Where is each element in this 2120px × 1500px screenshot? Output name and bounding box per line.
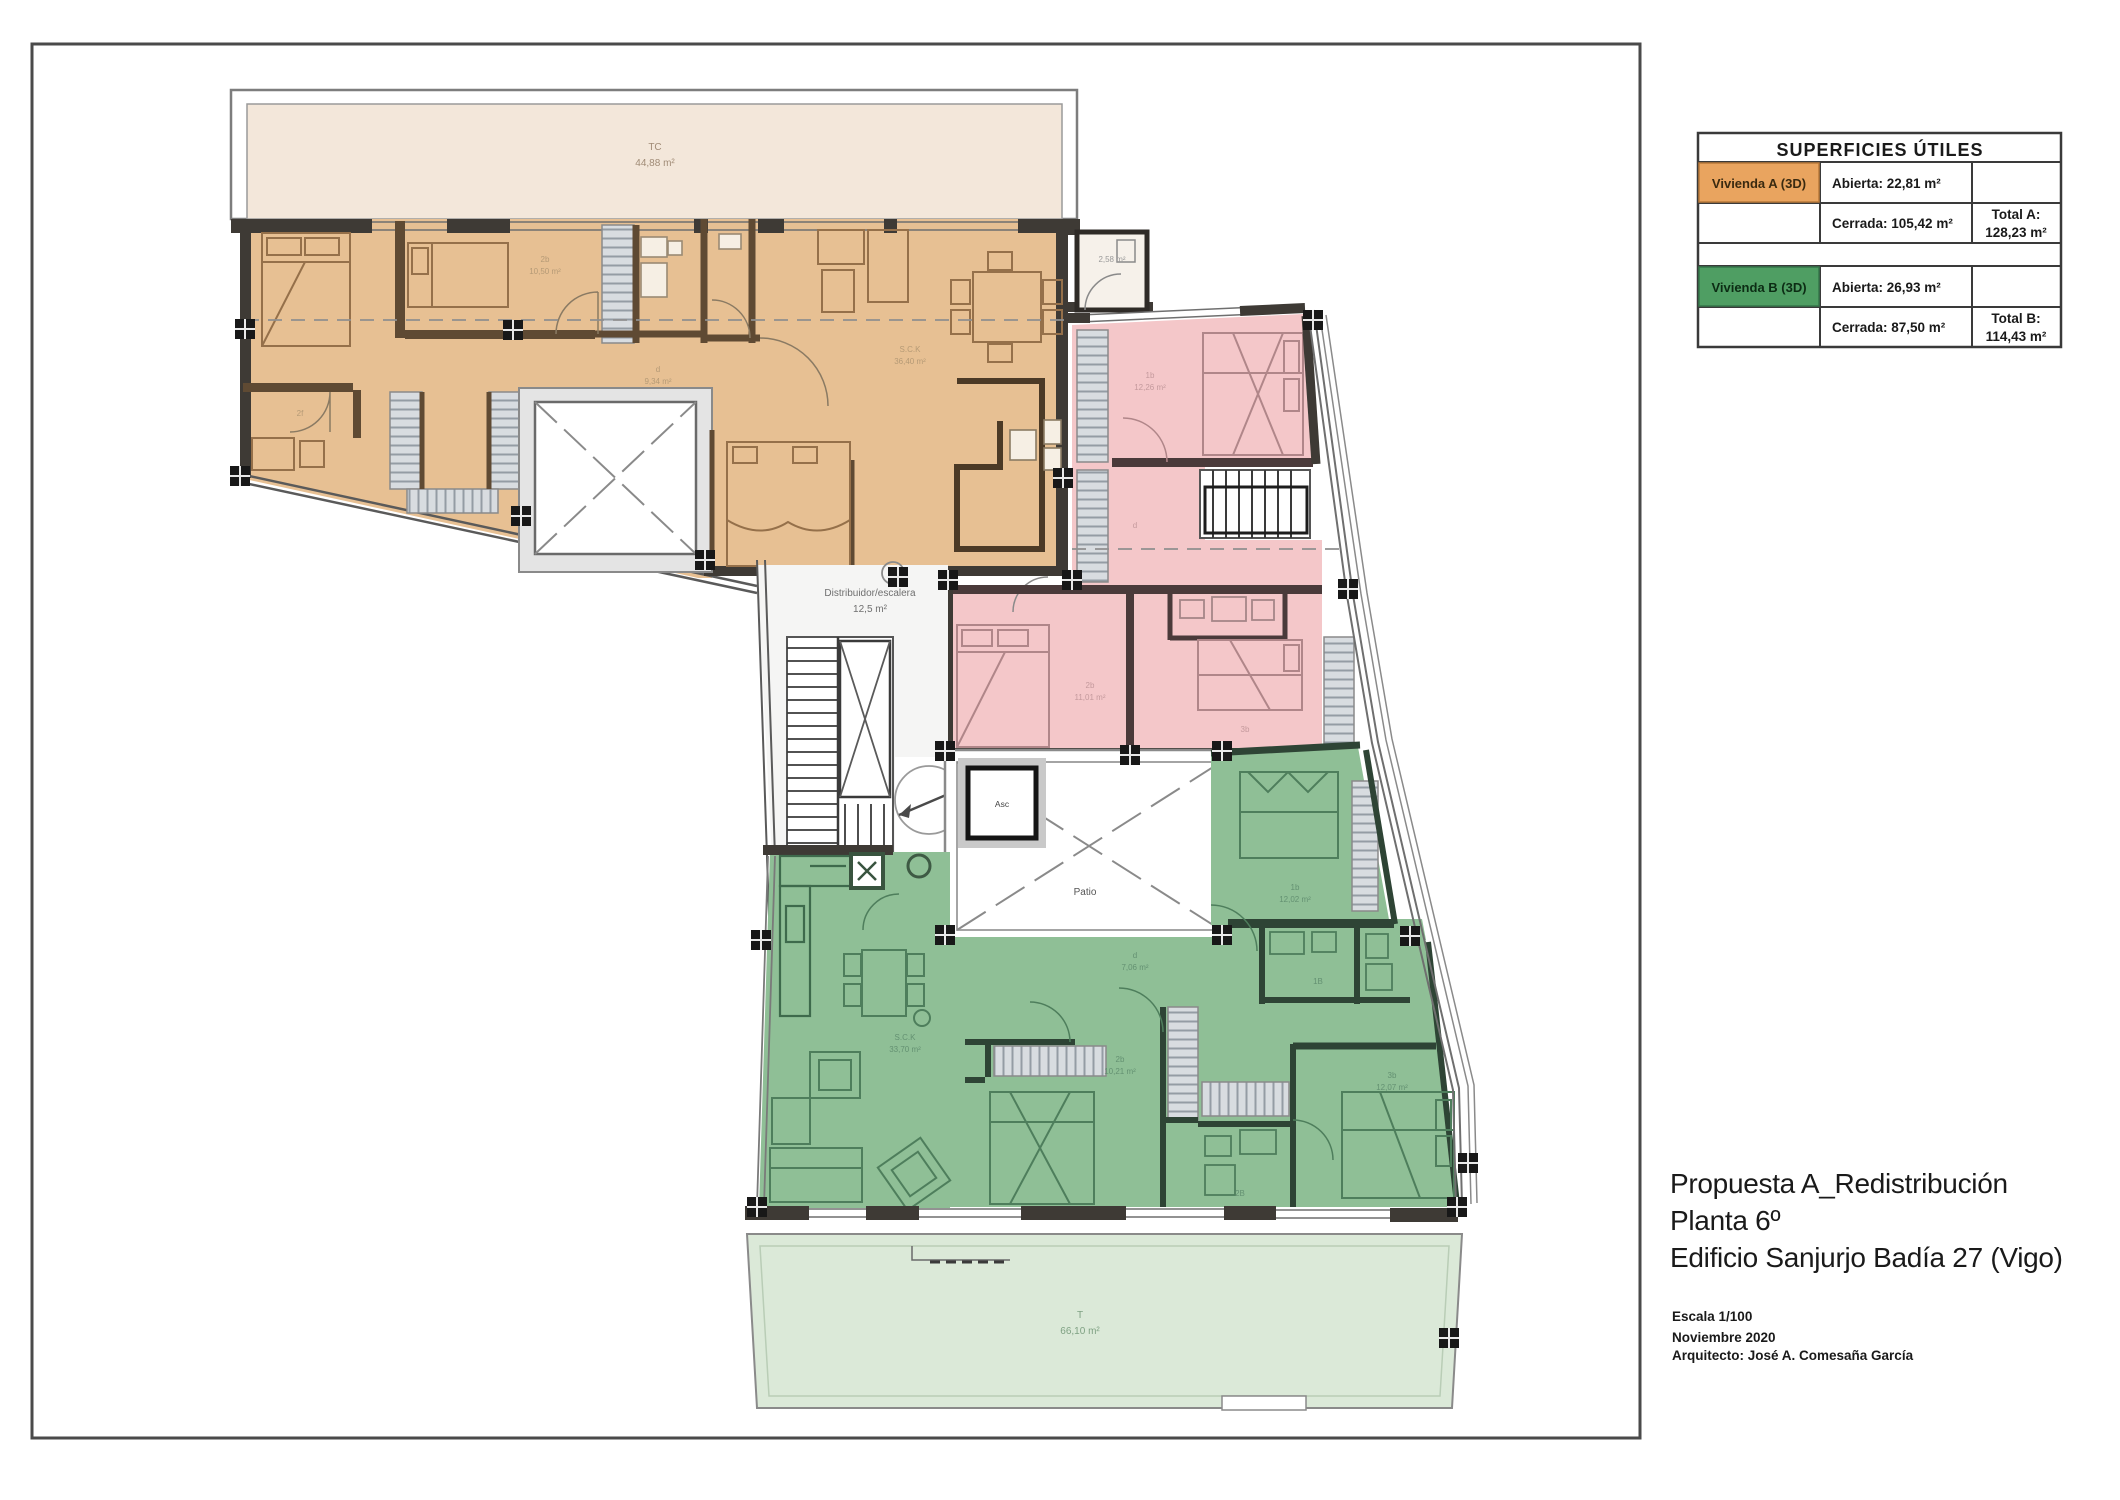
svg-text:d: d	[1133, 521, 1137, 530]
svg-text:Vivienda A (3D): Vivienda A (3D)	[1712, 176, 1806, 191]
svg-text:66,10 m²: 66,10 m²	[1060, 1326, 1100, 1337]
svg-text:11,01 m²: 11,01 m²	[1075, 693, 1106, 702]
svg-text:2B: 2B	[1235, 1189, 1245, 1198]
svg-text:Planta 6º: Planta 6º	[1670, 1205, 1780, 1236]
svg-text:S.C.K: S.C.K	[900, 345, 922, 354]
svg-text:7,06 m²: 7,06 m²	[1121, 963, 1148, 972]
svg-text:Distribuidor/escalera: Distribuidor/escalera	[824, 588, 916, 599]
svg-text:36,40 m²: 36,40 m²	[894, 357, 926, 366]
svg-text:2,58 m²: 2,58 m²	[1098, 255, 1125, 264]
svg-text:Patio: Patio	[1074, 887, 1097, 898]
svg-text:1B: 1B	[1313, 977, 1323, 986]
svg-text:2b: 2b	[1086, 681, 1095, 690]
svg-text:114,43 m²: 114,43 m²	[1986, 329, 2047, 344]
svg-text:12,26 m²: 12,26 m²	[1134, 383, 1166, 392]
svg-text:Cerrada: 105,42 m²: Cerrada: 105,42 m²	[1832, 216, 1953, 231]
svg-text:1b: 1b	[1146, 371, 1155, 380]
svg-text:Edificio Sanjurjo Badía 27 (Vi: Edificio Sanjurjo Badía 27 (Vigo)	[1670, 1242, 2063, 1273]
svg-text:Abierta: 22,81 m²: Abierta: 22,81 m²	[1832, 176, 1941, 191]
svg-text:Abierta: 26,93 m²: Abierta: 26,93 m²	[1832, 280, 1941, 295]
svg-text:44,88 m²: 44,88 m²	[635, 158, 675, 169]
svg-text:Arquitecto: José A. Comesaña G: Arquitecto: José A. Comesaña García	[1672, 1348, 1914, 1363]
svg-text:10,50 m²: 10,50 m²	[529, 267, 561, 276]
svg-text:12,5 m²: 12,5 m²	[853, 604, 888, 615]
svg-text:128,23 m²: 128,23 m²	[1985, 225, 2047, 240]
svg-text:3b: 3b	[1388, 1071, 1397, 1080]
svg-text:12,07 m²: 12,07 m²	[1376, 1083, 1408, 1092]
svg-text:Propuesta A_Redistribución: Propuesta A_Redistribución	[1670, 1168, 2008, 1199]
svg-text:Cerrada: 87,50 m²: Cerrada: 87,50 m²	[1832, 320, 1946, 335]
svg-text:TC: TC	[648, 142, 661, 153]
svg-text:Escala 1/100: Escala 1/100	[1672, 1309, 1752, 1324]
svg-text:Total A:: Total A:	[1992, 207, 2041, 222]
svg-text:Noviembre 2020: Noviembre 2020	[1672, 1330, 1776, 1345]
svg-text:9,34 m²: 9,34 m²	[644, 377, 671, 386]
svg-text:Asc: Asc	[995, 799, 1010, 809]
svg-text:2b: 2b	[1116, 1055, 1125, 1064]
svg-text:Vivienda B (3D): Vivienda B (3D)	[1711, 280, 1806, 295]
svg-text:SUPERFICIES ÚTILES: SUPERFICIES ÚTILES	[1776, 139, 1983, 160]
svg-text:Total B:: Total B:	[1991, 311, 2040, 326]
svg-text:d: d	[1133, 951, 1137, 960]
svg-text:33,70 m²: 33,70 m²	[889, 1045, 921, 1054]
svg-text:T: T	[1077, 1310, 1083, 1321]
svg-text:2b: 2b	[541, 255, 550, 264]
svg-text:12,02 m²: 12,02 m²	[1279, 895, 1311, 904]
svg-text:1b: 1b	[1291, 883, 1300, 892]
svg-text:d: d	[656, 365, 660, 374]
svg-text:S.C.K: S.C.K	[895, 1033, 917, 1042]
svg-text:10,21 m²: 10,21 m²	[1104, 1067, 1136, 1076]
svg-text:2f: 2f	[297, 409, 304, 418]
svg-text:3b: 3b	[1241, 725, 1250, 734]
